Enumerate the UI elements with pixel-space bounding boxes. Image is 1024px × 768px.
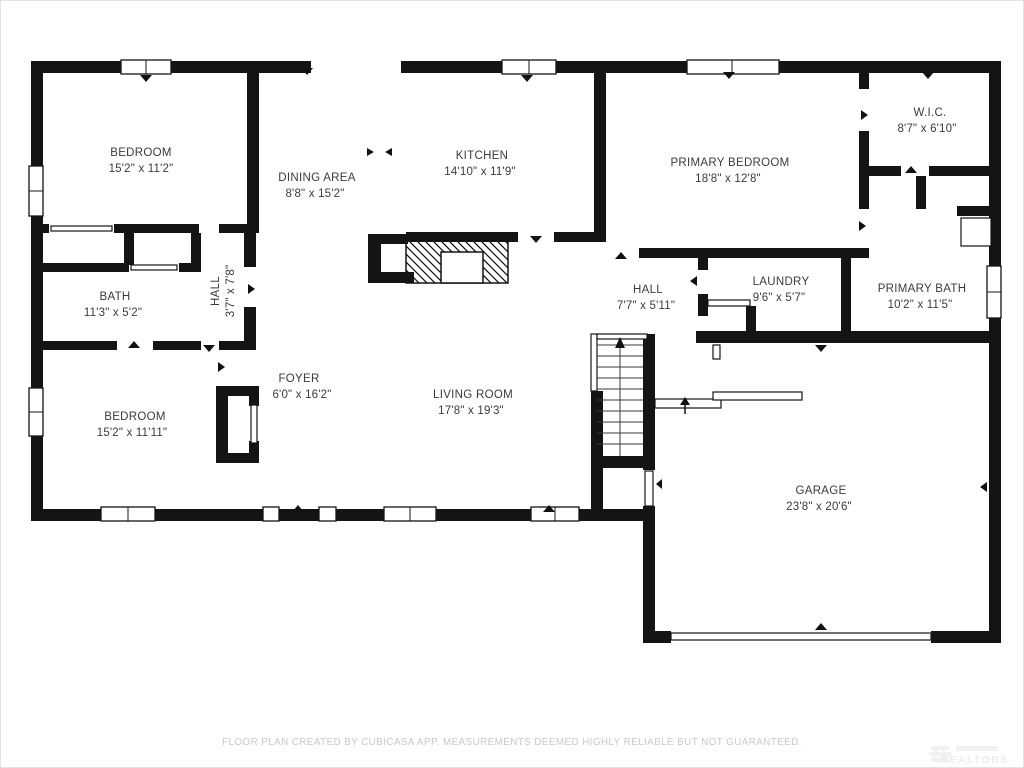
watermark-line1 xyxy=(956,746,998,751)
room-dims-laundry: 9'6" x 5'7" xyxy=(753,292,805,304)
room-dims-hall-small: 3'7" x 7'8" xyxy=(225,265,237,317)
room-label-hall-small-group: HALL 3'7" x 7'8" xyxy=(210,265,237,317)
room-label-hall: HALL xyxy=(633,284,663,296)
room-label-bedroom-1: BEDROOM xyxy=(110,147,172,159)
room-label-bath: BATH xyxy=(99,291,130,303)
room-dims-wic: 8'7" x 6'10" xyxy=(897,123,956,135)
stair-rail xyxy=(597,334,647,339)
floor-plan-page: BEDROOM 15'2" x 11'2" DINING AREA 8'8" x… xyxy=(0,0,1024,768)
landing-rail xyxy=(713,392,802,400)
room-dims-kitchen: 14'10" x 11'9" xyxy=(444,166,515,178)
staircase xyxy=(597,337,643,456)
window xyxy=(263,507,279,521)
room-dims-primary-bath: 10'2" x 11'5" xyxy=(888,299,953,311)
window xyxy=(687,60,779,74)
laundry-door xyxy=(708,300,750,306)
landing-rail xyxy=(713,345,720,359)
room-dims-primary-bedroom: 18'8" x 12'8" xyxy=(695,173,761,185)
windows xyxy=(29,60,1001,521)
garage-door xyxy=(671,633,931,640)
walls xyxy=(31,61,1001,643)
fireplace xyxy=(368,234,508,283)
room-dims-bedroom-2: 15'2" x 11'11" xyxy=(97,427,168,439)
footer-disclaimer: FLOOR PLAN CREATED BY CUBICASA APP. MEAS… xyxy=(222,737,802,748)
watermark: REALTORS xyxy=(929,746,1009,766)
garage-side-door xyxy=(645,471,653,506)
closet-door xyxy=(251,405,257,443)
room-dims-hall: 7'7" x 5'11" xyxy=(617,300,675,312)
room-dims-foyer: 6'0" x 16'2" xyxy=(272,389,331,401)
closet-door xyxy=(51,226,112,231)
watermark-realtors-text: REALTORS xyxy=(940,754,1009,766)
room-dims-dining-area: 8'8" x 15'2" xyxy=(285,188,344,200)
room-dims-living-room: 17'8" x 19'3" xyxy=(438,405,504,417)
room-label-garage: GARAGE xyxy=(795,485,846,497)
room-label-laundry: LAUNDRY xyxy=(753,276,810,288)
room-label-foyer: FOYER xyxy=(278,373,319,385)
window xyxy=(319,507,336,521)
stair-rail xyxy=(591,334,597,391)
closet-door xyxy=(131,265,177,270)
fireplace-box xyxy=(441,252,483,283)
room-label-dining-area: DINING AREA xyxy=(278,172,355,184)
room-label-kitchen: KITCHEN xyxy=(456,150,509,162)
room-dims-garage: 23'8" x 20'6" xyxy=(786,501,852,513)
room-label-bedroom-2: BEDROOM xyxy=(104,411,166,423)
room-label-hall-small: HALL xyxy=(210,276,222,306)
room-label-primary-bedroom: PRIMARY BEDROOM xyxy=(670,157,789,169)
room-dims-bedroom-1: 15'2" x 11'2" xyxy=(109,163,174,175)
room-label-wic: W.I.C. xyxy=(913,107,946,119)
room-dims-bath: 11'3" x 5'2" xyxy=(84,307,142,319)
room-label-primary-bath: PRIMARY BATH xyxy=(878,283,967,295)
shower-niche xyxy=(961,218,991,246)
floor-plan-canvas: BEDROOM 15'2" x 11'2" DINING AREA 8'8" x… xyxy=(1,1,1023,767)
room-label-living-room: LIVING ROOM xyxy=(433,389,513,401)
